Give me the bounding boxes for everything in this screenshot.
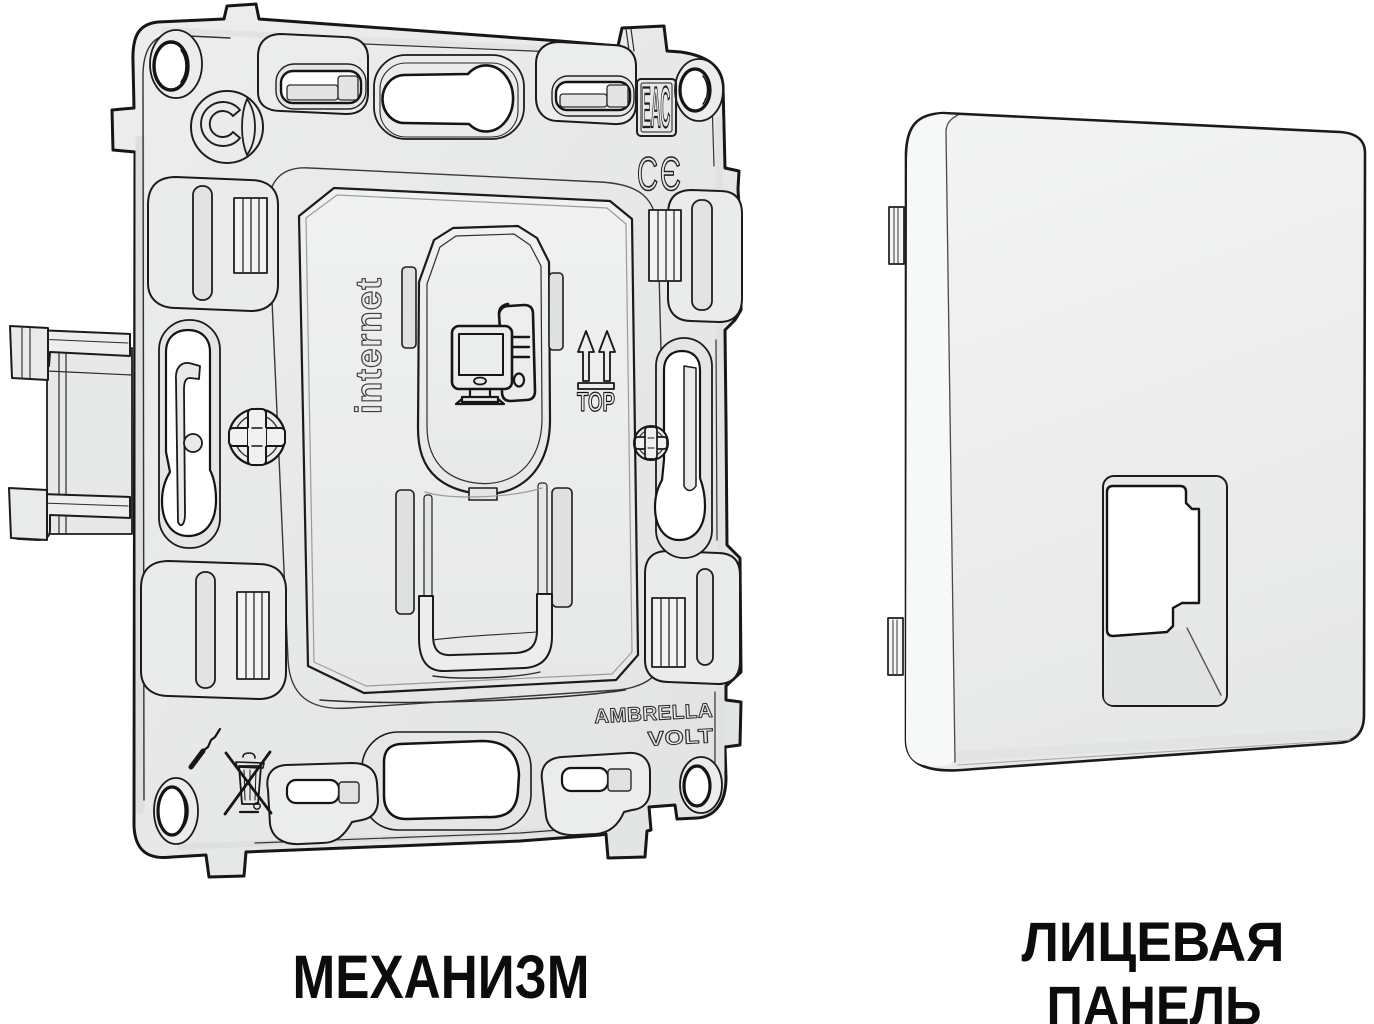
svg-text:internet: internet (348, 277, 389, 414)
svg-text:ПАНЕЛЬ: ПАНЕЛЬ (1047, 974, 1262, 1024)
svg-text:ЛИЦЕВАЯ: ЛИЦЕВАЯ (1022, 910, 1285, 973)
svg-text:CЄ: CЄ (637, 149, 683, 201)
svg-text:МЕХАНИЗМ: МЕХАНИЗМ (293, 943, 590, 1011)
svg-text:TOP: TOP (577, 387, 615, 417)
svg-text:ЕАС: ЕАС (642, 74, 670, 139)
svg-text:VOLT: VOLT (647, 725, 714, 750)
